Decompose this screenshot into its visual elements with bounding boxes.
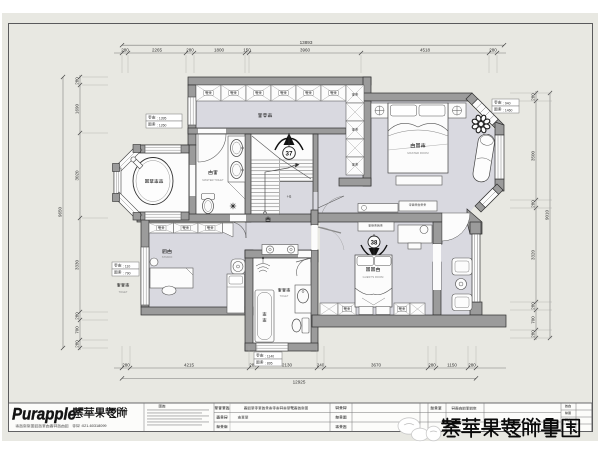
svg-text:12925: 12925 [293,380,306,385]
svg-text:280: 280 [121,47,129,52]
svg-text:280: 280 [530,200,535,208]
svg-text:2130: 2130 [282,362,293,367]
svg-text:TOILET: TOILET [280,295,289,298]
svg-text:MASTER ROOM: MASTER ROOM [407,151,429,155]
svg-text:3960: 3960 [300,47,311,52]
svg-text:1150: 1150 [447,362,457,367]
svg-text:700: 700 [530,316,535,324]
svg-text:: 895: : 895 [265,362,273,366]
svg-text::021-60318099: :021-60318099 [81,424,107,428]
svg-text:1690: 1690 [74,103,79,114]
svg-text:700: 700 [74,326,79,334]
svg-text:280: 280 [489,47,497,52]
svg-text:3330: 3330 [74,259,79,270]
svg-text:9650: 9650 [58,206,63,217]
svg-text:TOILET: TOILET [119,291,128,294]
svg-text:280: 280 [186,47,194,52]
svg-text:280: 280 [428,362,436,367]
svg-text:4518: 4518 [420,47,431,52]
svg-text::: : [229,407,230,411]
svg-text:: 1460: : 1460 [503,109,513,113]
svg-text:3320: 3320 [530,249,535,260]
svg-text:13893: 13893 [300,40,313,45]
svg-text:3500: 3500 [530,150,535,161]
svg-text:: 1395: : 1395 [157,117,167,121]
svg-text:: 1140: : 1140 [265,355,274,359]
svg-text:1800: 1800 [214,47,225,52]
svg-text:150: 150 [243,47,251,52]
svg-text:Purapple: Purapple [12,406,76,424]
svg-text:280: 280 [122,362,130,367]
svg-text:37: 37 [286,150,293,157]
svg-text:: 1260: : 1260 [157,124,167,128]
svg-text:280: 280 [530,93,535,101]
svg-text:280: 280 [530,302,535,310]
svg-text:GUEST'S ROOM: GUEST'S ROOM [363,275,384,279]
svg-text:2265: 2265 [152,47,163,52]
svg-text:: 940: : 940 [503,102,511,106]
svg-text:280: 280 [530,330,535,338]
svg-text:STUDIO: STUDIO [162,255,173,259]
svg-text:280: 280 [74,340,79,348]
svg-text:280: 280 [74,77,79,85]
svg-text:: 110: : 110 [123,265,130,269]
svg-text:MASTER TOILET: MASTER TOILET [202,178,224,182]
svg-text:280: 280 [468,362,476,367]
svg-text:+6: +6 [287,194,292,199]
svg-text:3020: 3020 [74,170,79,181]
svg-text:280: 280 [74,312,79,320]
svg-text:240: 240 [317,362,325,367]
svg-text:9010: 9010 [545,209,550,220]
svg-text:38: 38 [371,240,378,246]
svg-text:4215: 4215 [184,362,195,367]
svg-text:: 790: : 790 [123,272,131,276]
svg-text:3670: 3670 [371,362,382,367]
